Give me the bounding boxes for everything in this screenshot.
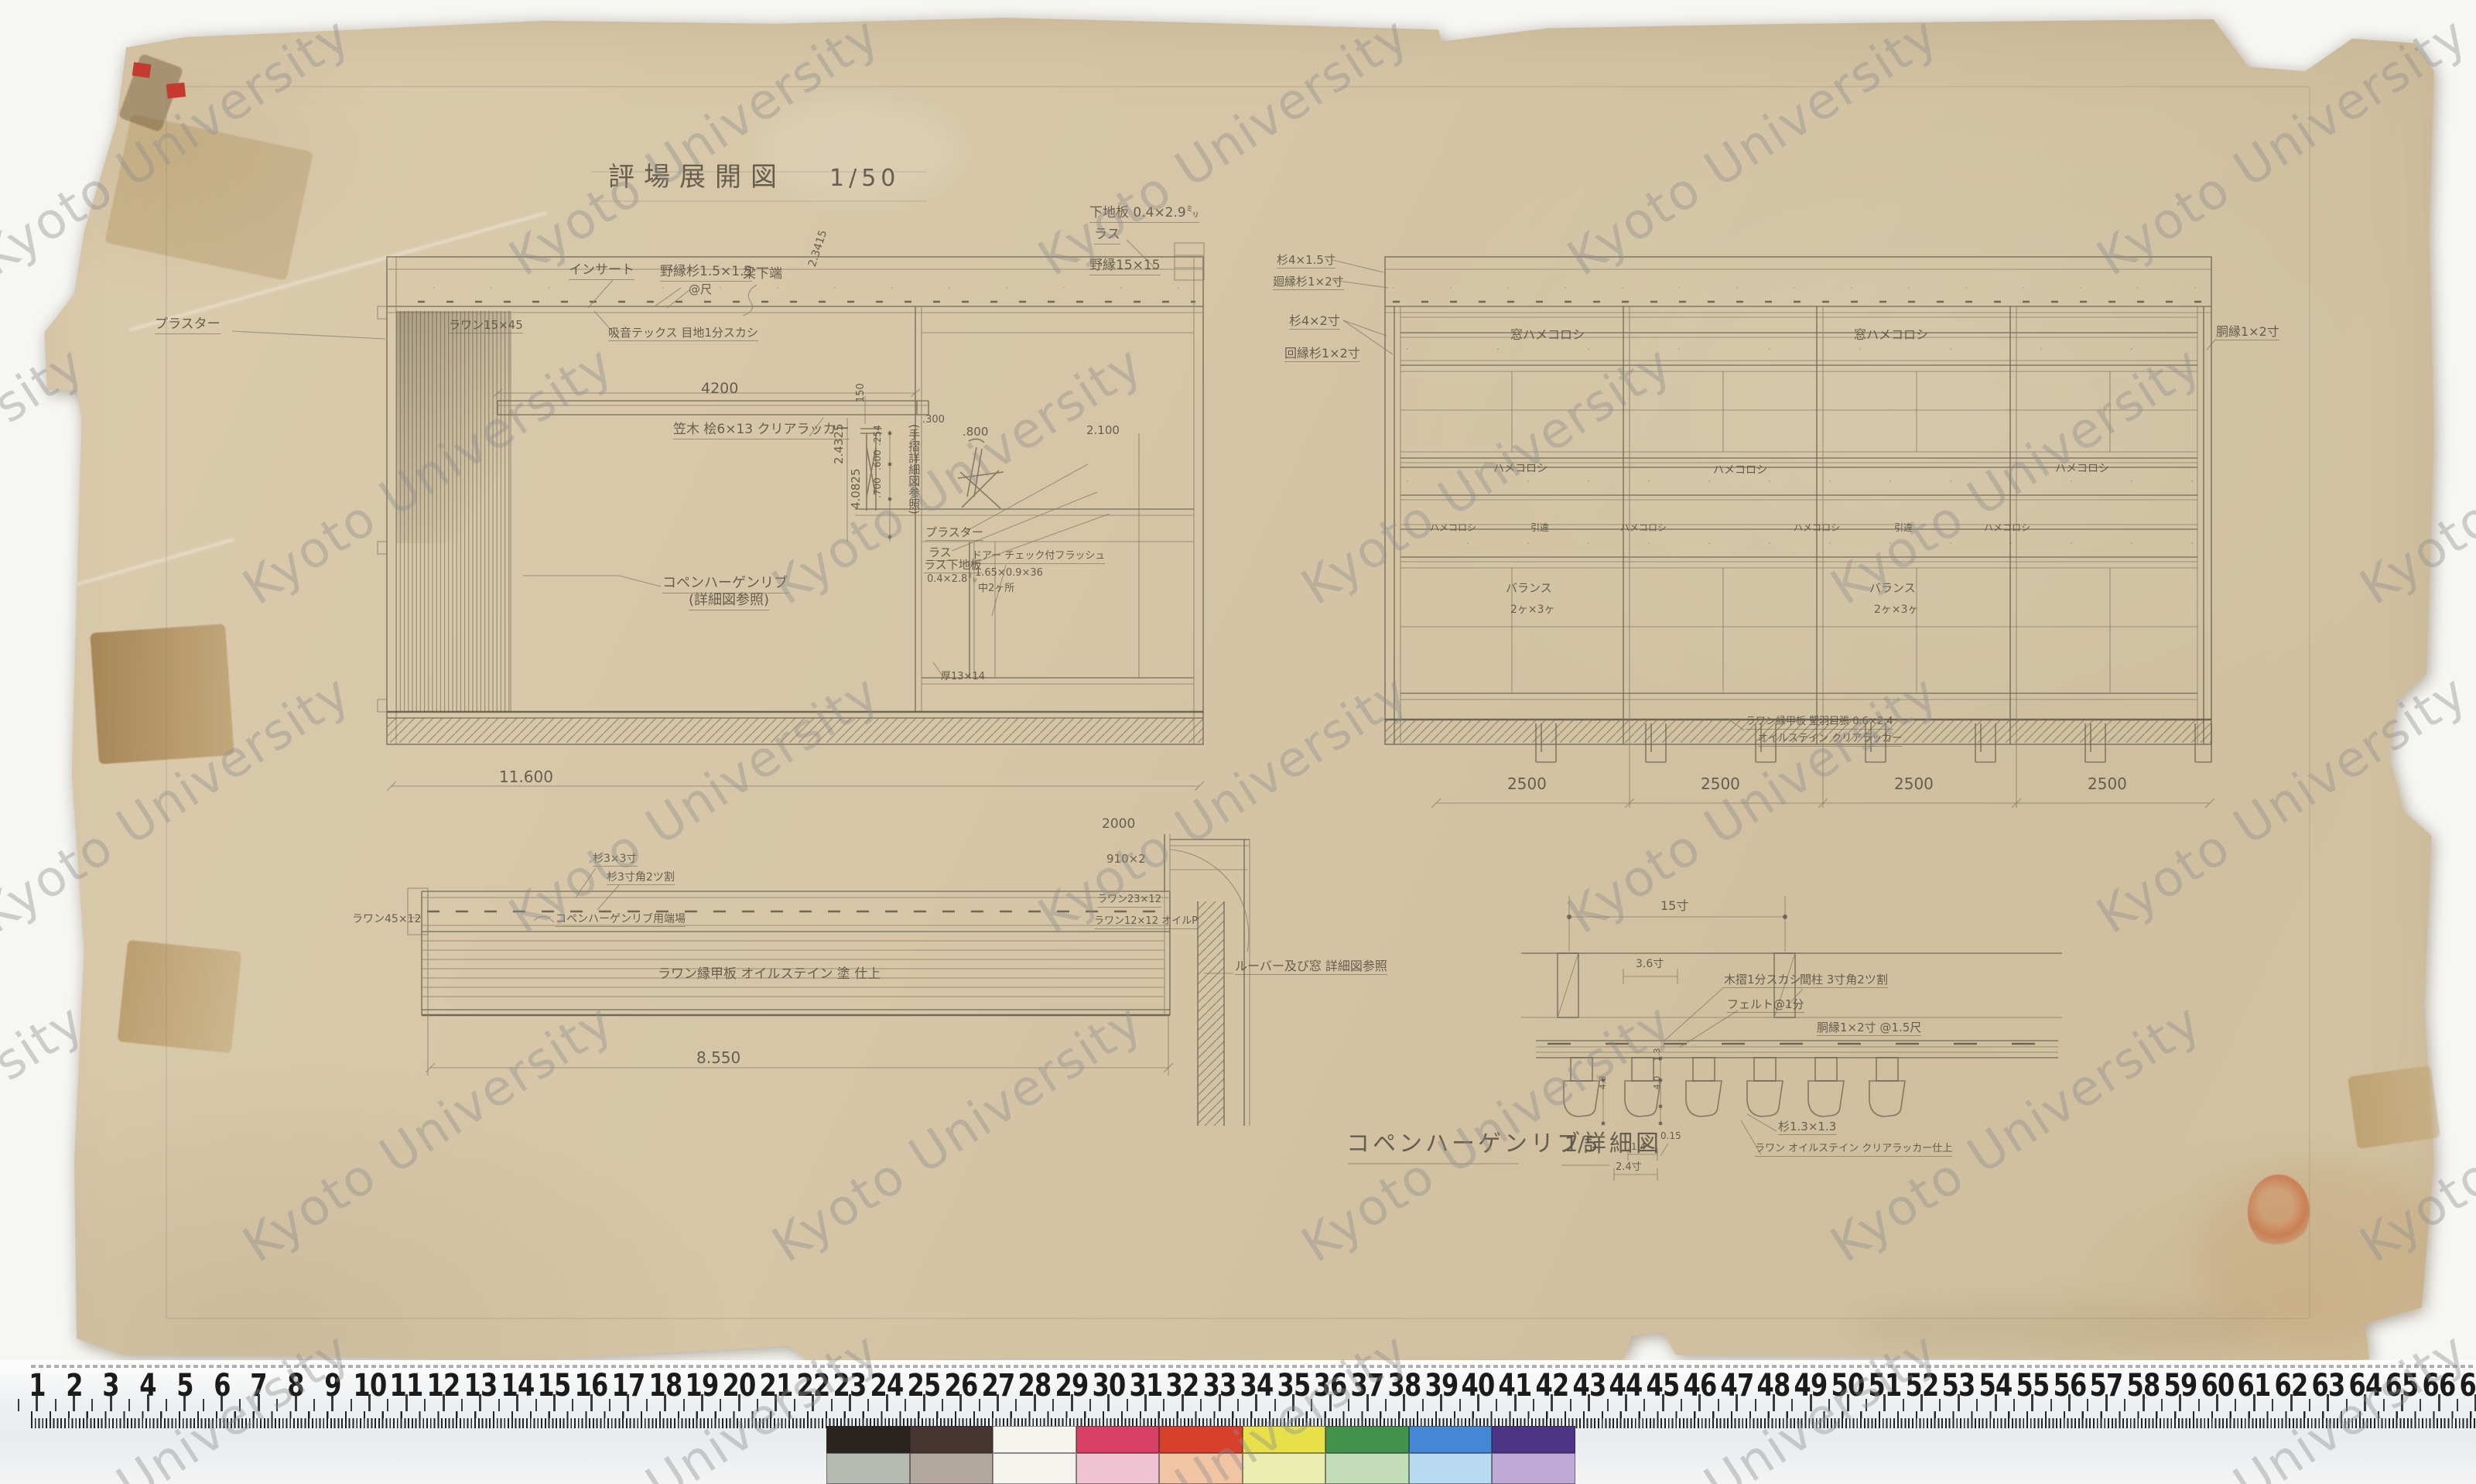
red-seal-stamp [2248,1175,2310,1249]
ruler-half-tick [1607,1399,1609,1411]
color-patch [826,1426,910,1453]
ruler-half-tick [461,1399,463,1411]
ruler-half-tick [1681,1399,1682,1411]
ruler-tick [2143,1394,2145,1411]
ruler-tick [627,1394,629,1411]
registration-mark [132,63,151,78]
ruler-half-tick [1015,1399,1017,1411]
ruler-half-tick [2161,1399,2163,1411]
ruler-half-tick [2272,1399,2273,1411]
ruler-tick [1477,1394,1479,1411]
ruler-half-tick [1976,1399,1978,1411]
ruler-half-tick [1939,1399,1941,1411]
paper-shadow [0,0,2476,1484]
ruler-tick [2364,1394,2366,1411]
ruler-half-tick [2050,1399,2052,1411]
ruler-half-tick [387,1399,388,1411]
ruler-tick [331,1394,333,1411]
ruler-tick [36,1394,38,1411]
ruler-tick [183,1394,186,1411]
ruler-half-tick [2457,1399,2458,1411]
ruler-tick [221,1394,223,1411]
color-patch [1243,1426,1326,1453]
ruler-tick [1773,1394,1775,1411]
ruler-half-tick [1459,1399,1461,1411]
ruler-tick [2290,1394,2293,1411]
ruler-half-tick [1237,1399,1239,1411]
ruler-tick [2179,1394,2181,1411]
ruler-tick [2401,1394,2403,1411]
ruler-half-tick [1163,1399,1164,1411]
ruler-tick [701,1394,703,1411]
color-patch [1325,1453,1409,1484]
ruler-half-tick [166,1399,167,1411]
ruler-half-tick [1052,1399,1054,1411]
ruler-half-tick [1274,1399,1276,1411]
ruler-tick [1292,1394,1294,1411]
ruler-tick [110,1394,112,1411]
ruler-tick [1182,1394,1184,1411]
ruler-tick [812,1394,814,1411]
tape-stain [2348,1065,2440,1149]
scanned-sheet: 評場展開図1/50下地板 0.4×2.9㍉ラス野縁15×15インサート野縁杉1.… [0,0,2476,1484]
ruler-half-tick [2235,1399,2236,1411]
ruler-tick [1329,1394,1332,1411]
ruler-half-tick [55,1399,56,1411]
ruler-tick [1144,1394,1147,1411]
tape-stain [90,624,234,764]
ruler-tick [2031,1394,2033,1411]
ruler-half-tick [1570,1399,1571,1411]
color-patch [993,1426,1076,1453]
ruler-half-tick [1533,1399,1534,1411]
ruler-half-tick [1311,1399,1312,1411]
color-patch [1409,1426,1493,1453]
ruler-tick [147,1394,149,1411]
color-patch [1243,1453,1326,1484]
ruler-half-tick [1385,1399,1387,1411]
ruler-half-tick [128,1399,130,1411]
ruler-half-tick [2124,1399,2125,1411]
ruler-half-tick [979,1399,980,1411]
ruler-half-tick [1791,1399,1793,1411]
ruler-tick [2438,1394,2440,1411]
ruler-half-tick [609,1399,610,1411]
ruler-tick [443,1394,445,1411]
ruler-tick [1219,1394,1221,1411]
ruler-half-tick [1200,1399,1202,1411]
ruler-half-tick [1866,1399,1867,1411]
ruler-half-tick [757,1399,758,1411]
ruler-half-tick [1422,1399,1424,1411]
ruler-tick [1588,1394,1590,1411]
color-patch [1409,1453,1493,1484]
ruler-tick [2068,1394,2071,1411]
ruler-half-tick [2198,1399,2200,1411]
registration-mark [166,83,186,98]
ruler-tick [1255,1394,1257,1411]
ruler-tick [775,1394,777,1411]
ruler-tick [405,1394,408,1411]
ruler-tick [738,1394,740,1411]
ruler-tick [553,1394,556,1411]
ruler-half-tick [1718,1399,1719,1411]
ruler-half-tick [867,1399,869,1411]
color-patch [910,1453,993,1484]
ruler-half-tick [239,1399,241,1411]
color-patch [1492,1453,1575,1484]
ruler-number: 67 [2459,1368,2476,1404]
ruler-tick [368,1394,371,1411]
ruler-tick [2216,1394,2218,1411]
ruler-half-tick [646,1399,648,1411]
color-patch [1159,1426,1243,1453]
color-patch [1076,1426,1160,1453]
ruler-tick [1736,1394,1738,1411]
ruler-tick [258,1394,260,1411]
ruler-tick [1995,1394,1997,1411]
ruler-tick [1883,1394,1886,1411]
ruler-half-tick [2309,1399,2310,1411]
color-patch [1325,1426,1409,1453]
color-patch [993,1453,1076,1484]
tape-5mm-ticks [31,1411,2476,1418]
color-patch [910,1426,993,1453]
ruler-half-tick [2420,1399,2421,1411]
color-patch [826,1453,910,1484]
ruler-tick [1034,1394,1036,1411]
ruler-half-tick [313,1399,315,1411]
ruler-half-tick [720,1399,721,1411]
ruler-half-tick [1828,1399,1830,1411]
ruler-tick [2105,1394,2108,1411]
ruler-tick [73,1394,75,1411]
ruler-tick [923,1394,925,1411]
tape-stain [118,940,242,1054]
ruler-tick [1514,1394,1517,1411]
ruler-half-tick [2013,1399,2015,1411]
ruler-tick [1662,1394,1664,1411]
ruler-tick [849,1394,851,1411]
ruler-half-tick [1755,1399,1756,1411]
paper-stain [758,101,959,201]
ruler-tick [1107,1394,1110,1411]
ruler-half-tick [905,1399,906,1411]
ruler-tick [1920,1394,1923,1411]
ruler-half-tick [91,1399,93,1411]
ruler-tick [886,1394,888,1411]
ruler-tick [1958,1394,1960,1411]
ruler-half-tick [1089,1399,1091,1411]
ruler-tick [295,1394,297,1411]
ruler-half-tick [1496,1399,1497,1411]
ruler-tick [664,1394,666,1411]
ruler-half-tick [1903,1399,1904,1411]
ruler-tick [1810,1394,1812,1411]
color-patch [1076,1453,1160,1484]
ruler-tick [1366,1394,1369,1411]
ruler-half-tick [1127,1399,1128,1411]
ruler-tick [959,1394,962,1411]
ruler-half-tick [2383,1399,2385,1411]
ruler-tick [1625,1394,1627,1411]
paper-crease [74,539,234,586]
ruler-half-tick [203,1399,204,1411]
color-patch [1159,1453,1243,1484]
ruler-half-tick [1348,1399,1349,1411]
paper-stain [1857,1300,2259,1354]
ruler-tick [1440,1394,1442,1411]
ruler-half-tick [424,1399,426,1411]
ruler-half-tick [535,1399,537,1411]
ruler-tick [2327,1394,2329,1411]
paper [0,0,2476,1484]
ruler-half-tick [2346,1399,2348,1411]
ruler-tick [1847,1394,1849,1411]
ruler-tick [1551,1394,1553,1411]
color-patch [1492,1426,1575,1453]
ruler-half-tick [351,1399,352,1411]
ruler-tick [2253,1394,2255,1411]
ruler-tick [590,1394,593,1411]
ruler-tick [1698,1394,1701,1411]
ruler-half-tick [831,1399,833,1411]
ruler-half-tick [794,1399,795,1411]
ruler-half-tick [498,1399,500,1411]
ruler-half-tick [276,1399,278,1411]
ruler-tick [479,1394,481,1411]
ruler-half-tick [572,1399,573,1411]
ruler-tick [516,1394,518,1411]
ruler-half-tick [683,1399,685,1411]
ruler-half-tick [942,1399,943,1411]
ruler-tick [1071,1394,1073,1411]
ruler-tick [997,1394,999,1411]
ruler-half-tick [2087,1399,2088,1411]
ruler-half-tick [18,1399,19,1411]
ruler-half-tick [1643,1399,1645,1411]
ruler-tick [1403,1394,1405,1411]
